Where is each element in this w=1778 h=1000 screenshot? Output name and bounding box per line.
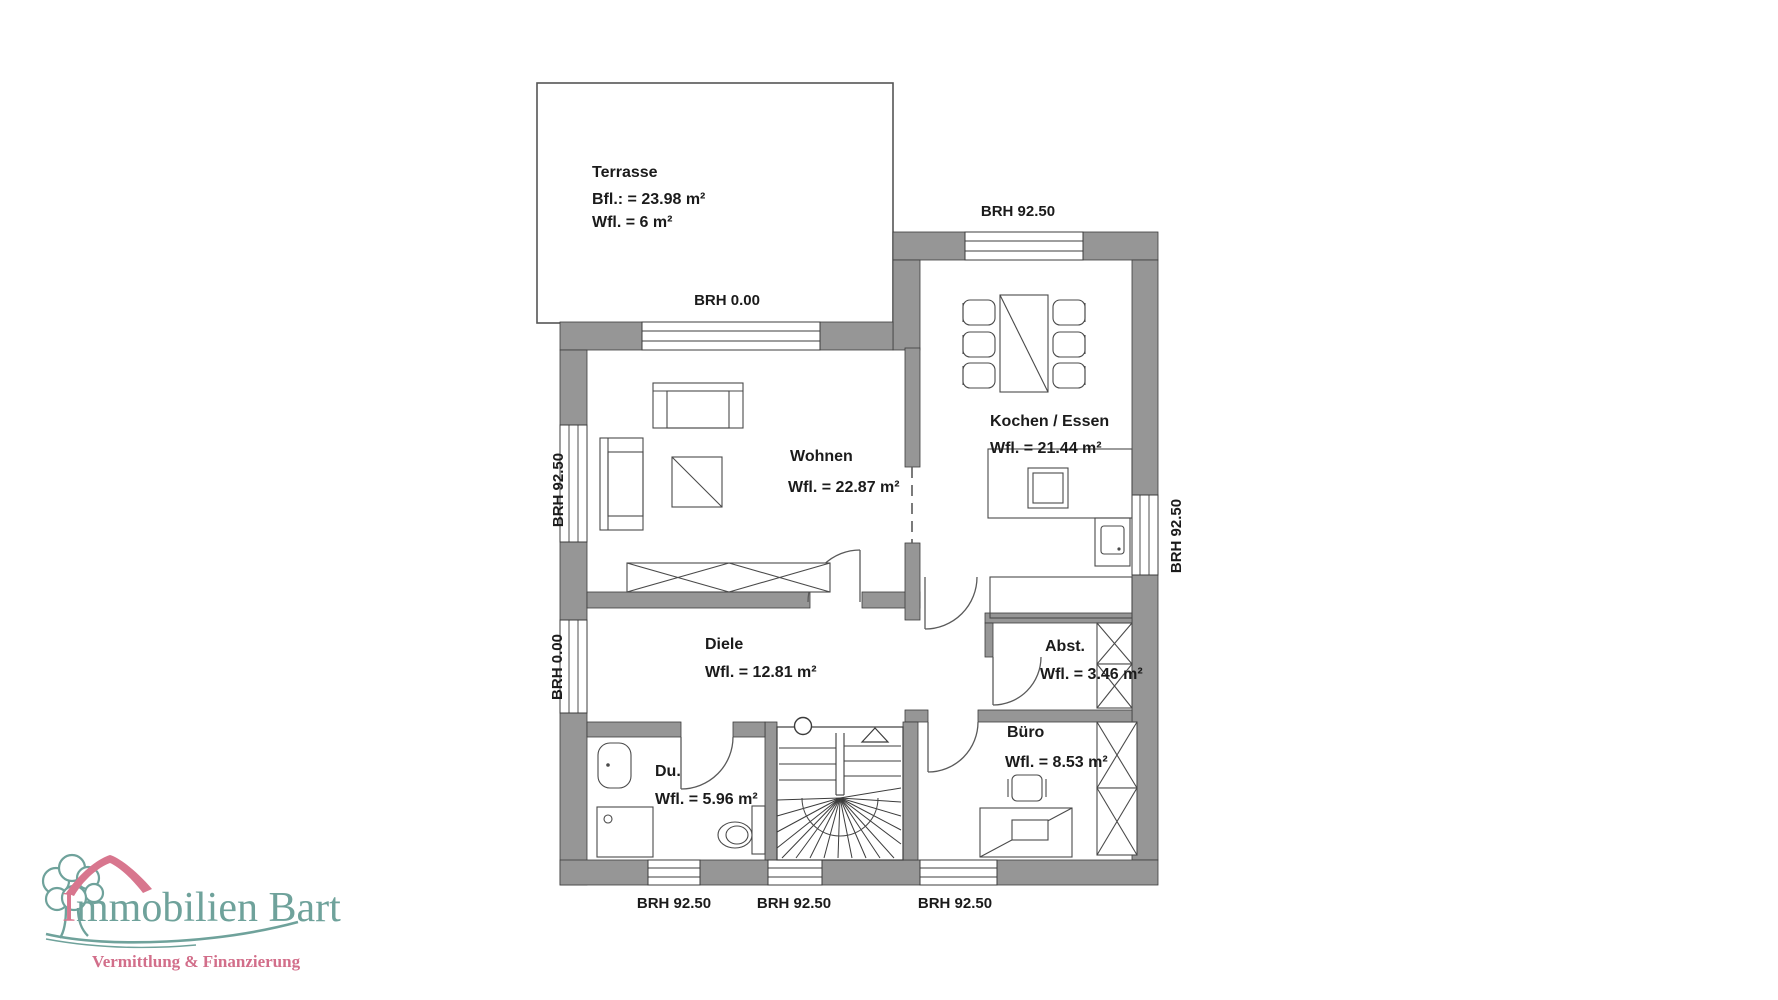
kitchen-top-window: [965, 232, 1083, 260]
terrace-bfl: Bfl.: = 23.98 m²: [592, 191, 705, 208]
desk-icon: [980, 808, 1072, 857]
door-abstellraum: [993, 657, 1041, 705]
sofa-icon: [600, 438, 643, 530]
toilet-icon: [718, 806, 765, 854]
door-diele-kueche: [925, 577, 977, 629]
diele-label: Diele: [705, 636, 743, 653]
door-buero: [928, 722, 978, 772]
sideboard-icon: [627, 563, 830, 592]
bottom-window-right: [920, 860, 997, 885]
dining-table-icon: [1000, 295, 1048, 392]
chair-icon: [963, 300, 995, 388]
diele-area: Wfl. = 12.81 m²: [705, 664, 817, 681]
terrace-label: Terrasse: [592, 164, 658, 181]
chair-icon: [1053, 300, 1085, 388]
coffee-table-icon: [672, 457, 722, 507]
stair-newel-icon: [795, 718, 812, 735]
wohnen-area: Wfl. = 22.87 m²: [788, 479, 900, 496]
kochen-label: Kochen / Essen: [990, 413, 1109, 430]
sofa-icon: [653, 383, 743, 428]
dusche-area: Wfl. = 5.96 m²: [655, 791, 758, 808]
brh-bottom-right: BRH 92.50: [918, 895, 992, 912]
kitchen-counter-icon: [988, 449, 1132, 518]
abstellraum-area: Wfl. = 3.46 m²: [1040, 666, 1143, 683]
brand-name: Immobilien Bart: [62, 885, 341, 931]
terrace: Terrasse Bfl.: = 23.98 m² Wfl. = 6 m²: [537, 83, 893, 323]
bottom-window-left: [648, 860, 700, 885]
abstellraum-label: Abst.: [1045, 638, 1085, 655]
wohnen-label: Wohnen: [790, 448, 853, 465]
right-window: [1132, 495, 1158, 575]
brh-left-entry: BRH 0.00: [549, 634, 566, 700]
floor-plan-drawing: Terrasse Bfl.: = 23.98 m² Wfl. = 6 m²: [0, 0, 1778, 1000]
floor-plan-page: Terrasse Bfl.: = 23.98 m² Wfl. = 6 m²: [0, 0, 1778, 1000]
buero-label: Büro: [1007, 724, 1045, 741]
buero-area: Wfl. = 8.53 m²: [1005, 754, 1108, 771]
washbasin-icon: [598, 743, 631, 788]
logo-tagline: Vermittlung & Finanzierung: [92, 952, 301, 971]
cupboard-icon: [990, 577, 1132, 618]
brh-left-window: BRH 92.50: [550, 453, 567, 527]
company-logo: Immobilien Bart Vermittlung & Finanzieru…: [43, 855, 341, 971]
brh-top-kitchen: BRH 92.50: [981, 203, 1055, 220]
brh-right-window: BRH 92.50: [1168, 499, 1185, 573]
bottom-window-middle: [768, 860, 822, 885]
office-chair-icon: [1008, 775, 1046, 801]
shower-icon: [597, 807, 653, 857]
appliance-icon: [1095, 518, 1130, 566]
door-dusche: [681, 737, 733, 789]
brh-terrace-door: BRH 0.00: [694, 292, 760, 309]
brh-bottom-middle: BRH 92.50: [757, 895, 831, 912]
brh-bottom-left: BRH 92.50: [637, 895, 711, 912]
kochen-area: Wfl. = 21.44 m²: [990, 440, 1102, 457]
stairs-icon: [777, 718, 903, 861]
terrace-door-window: [642, 322, 820, 350]
terrace-wfl: Wfl. = 6 m²: [592, 214, 672, 231]
dusche-label: Du.: [655, 763, 681, 780]
shelf-icon: [1097, 722, 1137, 855]
